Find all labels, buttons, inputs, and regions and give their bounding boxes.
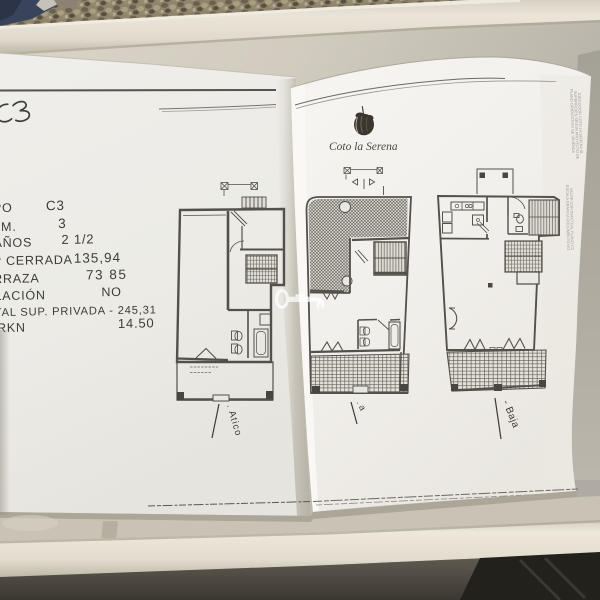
svg-text:135,94: 135,94 xyxy=(74,250,122,266)
svg-text:3: 3 xyxy=(58,216,67,231)
svg-text:NO: NO xyxy=(101,285,122,299)
svg-text:P CERRADA: P CERRADA xyxy=(0,253,73,268)
svg-text:Coto la Serena: Coto la Serena xyxy=(329,141,398,153)
svg-text:73 85: 73 85 xyxy=(86,267,128,283)
svg-text:PO: PO xyxy=(0,201,13,215)
svg-text:AÑOS: AÑOS xyxy=(0,235,32,250)
svg-text:LACIÓN: LACIÓN xyxy=(0,287,46,303)
svg-text:C3: C3 xyxy=(46,198,65,213)
svg-text:14.50: 14.50 xyxy=(118,315,155,331)
svg-text:RRAZA: RRAZA xyxy=(0,271,40,286)
svg-text:RM.: RM. xyxy=(0,220,17,234)
svg-text:2 1/2: 2 1/2 xyxy=(61,231,94,247)
